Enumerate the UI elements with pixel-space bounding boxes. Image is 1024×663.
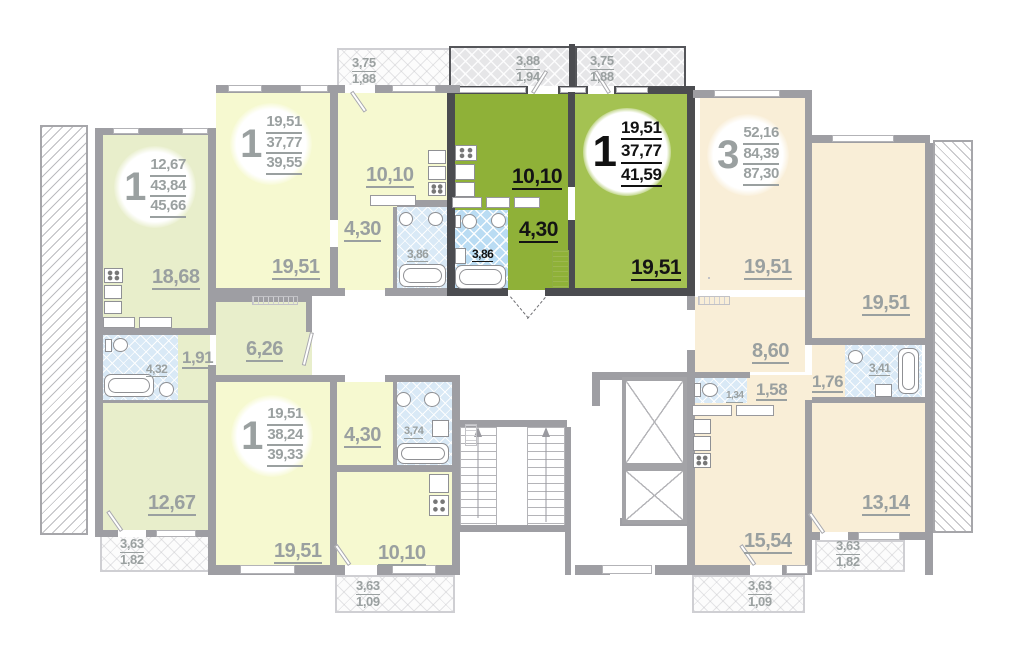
wall [569,44,575,88]
room-area-label: 12,67 [148,492,196,516]
toilet-icon [424,392,440,407]
window [714,90,780,97]
apartment-hl-badge: 1 19,51 37,77 41,59 [583,108,671,196]
wall [103,328,208,335]
bathtub-icon [104,374,154,397]
balcony-area-label: 3,751,88 [590,54,614,85]
bathtub-icon [455,265,506,289]
washbasin-icon [455,248,466,264]
stove-icon [429,495,449,516]
toilet-icon [455,215,461,228]
balcony-area-label: 3,881,94 [516,54,540,85]
wall [925,143,933,575]
room-area-label: 4,30 [344,218,381,242]
wall [385,288,447,296]
room-area-label: 10,10 [378,542,426,566]
room-area-label: 8,60 [752,340,789,364]
window [832,135,894,142]
room-area-label: 19,51 [862,292,910,316]
wall [216,375,345,382]
balcony-door-opening [345,565,377,575]
window [113,128,139,134]
washbasin-icon [875,384,892,397]
counter-icon [103,317,135,328]
stove-icon [455,145,477,161]
room-area-label: 19,51 [274,540,322,564]
balcony-area-label: 3,631,82 [120,537,144,568]
radiator-icon [708,277,710,279]
apartment-botmid-balcony [335,575,455,613]
counter-icon [736,405,774,416]
window [786,565,808,574]
sink-icon [396,392,411,407]
room-area-label: 1,58 [756,380,787,401]
sink-icon [159,382,174,397]
floor-plan: 18,68 4,32 1,91 6,26 12,67 3,631,82 1 12… [0,0,1024,663]
adjacent-section-wall-left [40,125,88,535]
fridge-icon [104,301,122,314]
oven-icon [104,285,122,299]
room-area-label: 6,26 [246,338,283,362]
room-area-label: 19,51 [744,256,792,280]
stove-icon [428,182,446,196]
entrance-door-swing [527,297,546,319]
wall [447,86,455,296]
room-area-label: 10,10 [512,165,562,190]
room-area-label: 13,14 [862,492,910,516]
toilet-icon [462,214,477,229]
fridge-icon [455,182,475,197]
window [458,87,526,93]
room-area-label: 1,76 [812,372,843,393]
wall [687,296,695,310]
apartment-right-badge: 3 52,16 84,39 87,30 [707,114,789,196]
wall [95,128,103,537]
wall [330,465,452,472]
apartment-left-balcony [100,535,210,572]
window [228,85,262,92]
wall [812,338,925,345]
elevator-shaft [622,377,687,467]
toilet-icon [105,339,112,352]
toilet-icon [694,383,701,397]
room-area-label: 3,86 [472,247,493,262]
radiator-icon [698,296,730,305]
oven-icon [428,166,446,180]
fridge-icon [693,419,711,434]
wall [330,93,338,220]
balcony-area-label: 3,751,88 [352,56,376,87]
bathtub-icon [898,348,919,394]
window [858,532,900,540]
wall [95,530,215,537]
room-area-label: 4,30 [519,218,558,243]
entrance-door-swing [510,296,529,318]
wall [568,92,575,187]
oven-icon [429,474,449,493]
apartment-topmid-badge: 1 19,51 37,77 39,55 [230,103,312,185]
toilet-icon [428,212,443,226]
wall [330,247,338,290]
room-area-label: 4,30 [344,424,381,448]
toilet-icon [702,383,718,397]
stove-icon [104,268,123,283]
wall [805,135,812,345]
balcony-area-label: 3,631,09 [356,579,380,610]
wall [393,207,397,290]
window [392,565,436,574]
wall [592,380,600,406]
room-area-label: 1,91 [182,348,213,369]
wall [330,382,337,570]
apartment-right-room-balcony [815,540,905,572]
wall [805,400,812,575]
room-area-label: 4,32 [146,362,167,377]
counter-icon [370,195,416,206]
room-area-label: 3,41 [869,361,890,376]
room-area-label: 3,86 [407,247,428,262]
apartment-left-badge: 1 12,67 43,84 45,66 [114,146,196,228]
window [240,565,295,574]
wall [805,98,812,135]
wall [385,375,460,382]
window [182,128,208,134]
balcony-area-label: 3,631,82 [836,539,860,570]
room-area-label: 15,54 [744,530,792,554]
room-area-label: 19,51 [631,256,681,281]
room-area-label: 1,34 [726,390,743,403]
toilet-icon [113,338,128,352]
counter-icon [514,197,540,208]
fridge-icon [428,150,446,164]
window [300,85,328,92]
apartment-hl-balcony-a [449,46,571,88]
window [616,87,648,93]
apartment-botmid-badge: 1 19,51 38,24 39,33 [231,395,313,477]
balcony-area-label: 3,631,09 [748,579,772,610]
oven-icon [693,436,711,451]
oven-icon [455,164,475,180]
counter-icon [486,197,510,208]
elevator-shaft [622,467,687,524]
bathtub-icon [397,443,449,464]
radiator-icon [465,424,477,446]
counter-icon [452,197,482,208]
wall [692,372,750,378]
sink-icon [399,212,413,226]
stove-icon [693,453,711,468]
wall [103,400,210,403]
sink-icon [848,350,863,364]
entrance-door-opening [602,565,652,574]
radiator-icon [252,296,298,305]
wall [306,302,312,332]
washer-icon [432,420,449,437]
room-area-label: 10,10 [366,164,414,188]
counter-icon [692,405,732,416]
window [156,530,196,537]
window [392,85,436,92]
wall [568,220,575,296]
counter-icon [139,317,172,328]
room-area-label: 18,68 [152,266,200,290]
wall [216,288,345,296]
adjacent-section-wall-right [933,140,973,533]
radiator-icon [552,250,569,288]
sink-icon [491,213,506,228]
wall [447,288,508,296]
wall [687,86,695,296]
wall [208,365,216,575]
balcony-door-opening [750,565,782,575]
bathtub-icon [399,264,446,287]
room-area-label: 19,51 [272,256,320,280]
room-area-label: 3,74 [404,425,423,439]
wall [812,397,925,403]
wall [208,128,216,335]
